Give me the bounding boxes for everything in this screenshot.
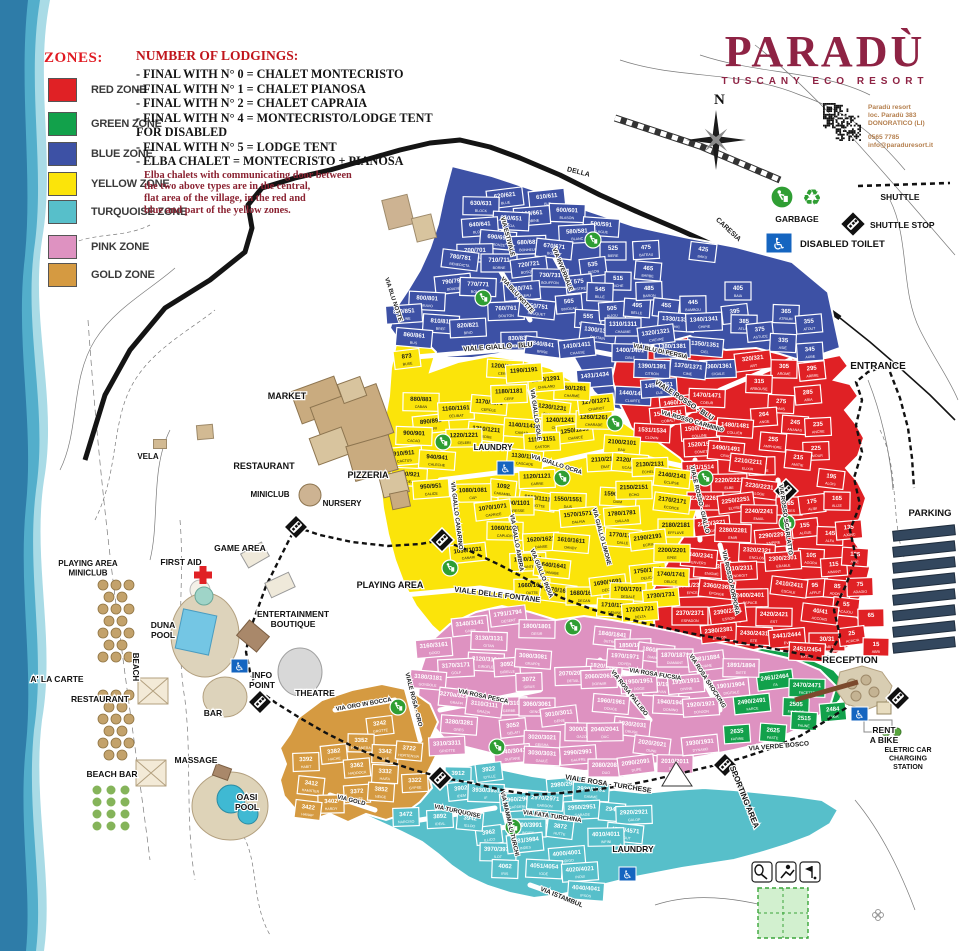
plot-2140/2141: 2140/2141ECLIPSE	[653, 467, 691, 489]
plot-165: 165ALIZE	[824, 492, 850, 510]
plot-2380/2381: 2380/2381ETALON	[700, 622, 738, 644]
svg-text:DELICE: DELICE	[664, 580, 678, 584]
plot-3280/3281: 3280/3281GRES	[440, 715, 477, 735]
svg-text:445: 445	[688, 300, 699, 306]
plot-600/601: 600/601BLASON	[549, 203, 586, 222]
contact-line: 0565 7785	[868, 134, 960, 142]
svg-text:CHIPIE: CHIPIE	[698, 325, 711, 330]
plot-3392: 3392HABIT	[293, 753, 320, 772]
plot-1410/1411: 1410/1411CHASSE	[558, 337, 596, 359]
green-dot	[107, 810, 116, 819]
svg-text:ECHO: ECHO	[629, 493, 640, 497]
svg-text:1120/1121: 1120/1121	[523, 473, 552, 480]
garbage-icon	[585, 232, 601, 248]
flower-icon	[873, 913, 878, 918]
garbage-icon	[554, 470, 570, 486]
plot-1610/1611: 1610/1611DANDY	[552, 532, 589, 553]
plot-495: 495BELLE	[623, 298, 650, 318]
plot-1780/1781: 1780/1781DALLAS	[603, 506, 640, 526]
svg-text:800/801: 800/801	[416, 295, 439, 302]
svg-text:BLANC: BLANC	[571, 237, 584, 242]
legend-swatch	[48, 263, 77, 287]
svg-text:ETE: ETE	[750, 639, 758, 643]
svg-text:3722: 3722	[402, 745, 416, 752]
building	[877, 702, 891, 714]
legend-swatch	[48, 235, 77, 259]
plot-850/851: 850/851BRUNE	[385, 304, 422, 324]
parking-row	[893, 621, 956, 637]
svg-text:BAIA: BAIA	[734, 294, 743, 298]
facility-label: FIRST AID	[160, 557, 201, 567]
green-dot	[107, 786, 116, 795]
svg-text:2505: 2505	[789, 702, 803, 708]
plot-195: 195ALOIS	[817, 468, 845, 489]
plot-3422: 3422HANAP	[294, 799, 322, 820]
svg-text:275: 275	[776, 399, 787, 406]
svg-text:ALIZE: ALIZE	[832, 504, 843, 508]
svg-text:BELLE: BELLE	[631, 311, 643, 316]
svg-text:600/601: 600/601	[556, 208, 579, 215]
plot-295: 295ARBRE	[798, 361, 826, 382]
svg-text:AFFUT: AFFUT	[809, 591, 822, 596]
plot-264: 264ANGE	[750, 407, 777, 427]
facility-label: POOL	[151, 630, 175, 640]
svg-text:515: 515	[613, 276, 624, 282]
svg-text:2515: 2515	[797, 716, 811, 723]
contour-line	[95, 310, 215, 520]
facility-label: VELA	[137, 452, 159, 461]
plot-1920/1921: 1920/1921DONJON	[682, 697, 719, 717]
svg-text:3912: 3912	[451, 771, 465, 777]
svg-text:CLE: CLE	[656, 391, 664, 396]
plot-3852: 3852NEIGE	[367, 782, 394, 802]
svg-text:3060/3061: 3060/3061	[523, 702, 552, 708]
recycle-icon: ♻	[802, 186, 822, 211]
plot-2370/2371: 2370/2371ESPADON	[672, 607, 708, 625]
svg-text:95: 95	[811, 583, 819, 589]
svg-text:ENCLOS: ENCLOS	[749, 556, 765, 561]
facility-label: BOUTIQUE	[271, 619, 316, 629]
svg-text:165: 165	[832, 496, 843, 502]
qr-code	[823, 103, 861, 141]
beach-umbrella	[124, 604, 134, 614]
svg-text:ASIE: ASIE	[779, 346, 788, 350]
garbage-icon	[475, 290, 491, 306]
plot-305: 305AROME	[771, 360, 797, 378]
building	[869, 687, 879, 697]
svg-text:730/731: 730/731	[539, 273, 561, 279]
svg-text:IRIS: IRIS	[501, 872, 509, 876]
beach-umbrella	[111, 652, 121, 662]
svg-text:3392: 3392	[299, 757, 313, 763]
beach-umbrella	[117, 726, 127, 736]
svg-text:1240/1241: 1240/1241	[546, 418, 575, 424]
plot-2390/2391: 2390/2391ESSOR	[709, 603, 747, 625]
svg-text:3020/3021: 3020/3021	[528, 735, 557, 742]
contact-line: DONORATICO (LI)	[868, 120, 960, 128]
facility-label: PIZZERIA	[347, 470, 389, 480]
brand-contact: Paradù resortloc. Paradù 383DONORATICO (…	[868, 104, 960, 150]
svg-text:1220/1221: 1220/1221	[450, 433, 479, 440]
svg-text:DETAIL: DETAIL	[567, 679, 579, 683]
plot-405: 405BAIA	[725, 282, 751, 300]
svg-text:EMAIL: EMAIL	[753, 517, 764, 521]
plot-2635: 2635FARINE	[723, 724, 750, 744]
plot-860/861: 860/861BUS	[395, 327, 432, 348]
legend-item-gold-zone: GOLD ZONE	[48, 263, 155, 287]
svg-text:505: 505	[607, 306, 618, 313]
svg-text:GYPSE: GYPSE	[409, 786, 422, 791]
svg-text:CHARADE: CHARADE	[585, 423, 603, 427]
svg-text:BREF: BREF	[436, 327, 447, 332]
plot-3310/3311: 3310/3311GRIOTTE	[429, 736, 466, 756]
lodging-rule: - FINAL WITH N° 5 = LODGE TENT	[136, 140, 436, 155]
svg-text:DIETE: DIETE	[736, 671, 747, 675]
garbage-label: GARBAGE	[775, 214, 819, 224]
svg-text:BAMBOU: BAMBOU	[685, 308, 701, 312]
beach-umbrella	[104, 592, 114, 602]
svg-text:♿: ♿	[854, 708, 864, 721]
facility-label: PARKING	[908, 508, 951, 519]
svg-text:245: 245	[790, 420, 801, 427]
flower-icon	[879, 913, 884, 918]
garbage-icon	[607, 415, 623, 431]
svg-text:CACAO: CACAO	[407, 439, 420, 443]
green-dot	[121, 786, 130, 795]
green-dot	[107, 822, 116, 831]
flower-icon	[876, 910, 881, 915]
green-dot	[121, 798, 130, 807]
svg-text:♿: ♿	[622, 868, 632, 881]
garbage-icon	[442, 560, 458, 576]
facility-label: PLAYING AREA	[357, 580, 424, 590]
svg-text:2280/2281: 2280/2281	[719, 528, 748, 535]
legend-item-red-zone: RED ZONE	[48, 78, 146, 102]
beach-umbrella	[117, 750, 127, 760]
svg-text:CLAIRTE: CLAIRTE	[625, 399, 641, 404]
svg-text:75: 75	[856, 582, 864, 588]
svg-text:BRIO: BRIO	[464, 331, 473, 335]
plot-255: 255AMPHORE	[759, 432, 786, 452]
svg-text:GIROFLE: GIROFLE	[478, 665, 495, 670]
svg-text:405: 405	[733, 286, 744, 292]
svg-text:HAIFA: HAIFA	[379, 777, 390, 782]
svg-text:1080/1081: 1080/1081	[459, 488, 488, 495]
svg-text:CLOWN: CLOWN	[645, 436, 659, 441]
svg-text:COEUR: COEUR	[700, 401, 714, 405]
svg-text:3372: 3372	[350, 789, 364, 796]
green-dot	[121, 822, 130, 831]
building	[861, 675, 871, 685]
plot-3412: 3412HAMSTER	[297, 776, 325, 797]
svg-text:2920/2921: 2920/2921	[620, 809, 649, 816]
facility-label: INFO	[252, 670, 273, 680]
shuttle-stop-label: SHUTTLE STOP	[870, 220, 935, 230]
svg-text:3852: 3852	[374, 787, 388, 794]
beach-umbrella	[104, 640, 114, 650]
facility-label: BAR	[204, 708, 222, 718]
svg-text:2370/2371: 2370/2371	[676, 611, 705, 617]
flower-icon	[876, 916, 881, 921]
plot-2240/2241: 2240/2241EMAIL	[741, 505, 777, 524]
svg-text:3332: 3332	[378, 769, 392, 776]
svg-text:65: 65	[868, 613, 875, 619]
facility-label: LAUNDRY	[612, 844, 654, 854]
lodgings-rules: - FINAL WITH N° 0 = CHALET MONTECRISTO- …	[136, 67, 436, 169]
plot-425: 425BAKU	[689, 241, 717, 262]
plot-1310/1311: 1310/1311CHAUME	[605, 318, 641, 336]
lodging-note-line: flat area of the village, in the red and	[144, 193, 436, 205]
facility-label: A BIKE	[870, 735, 899, 745]
resort-map-page: 620/621BLUE630/631BLOCK610/611BLE600/601…	[0, 0, 961, 951]
svg-text:2635: 2635	[730, 729, 744, 736]
svg-text:335: 335	[778, 338, 789, 345]
facility-label: DUNA	[151, 620, 176, 630]
plot-2461/2464: 2461/2464FA	[756, 669, 794, 691]
legend-swatch	[48, 78, 77, 102]
disabled-toilet-icon: ♿	[231, 659, 248, 673]
road-label: DELLA	[566, 166, 590, 178]
lodging-note-line: Elba chalets with communicating door bet…	[144, 170, 436, 182]
svg-text:DUO: DUO	[602, 771, 610, 775]
garbage-icon	[697, 470, 713, 486]
svg-text:900/901: 900/901	[403, 431, 426, 438]
svg-text:EPEE: EPEE	[667, 556, 677, 560]
brand-logo: PARADÙ	[700, 30, 950, 74]
plot-2200/2201: 2200/2201EPEE	[654, 544, 690, 563]
svg-text:1740/1741: 1740/1741	[657, 572, 686, 579]
plot-2040/2041: 2040/2041DUC	[587, 723, 623, 742]
green-dot	[93, 798, 102, 807]
svg-text:2200/2201: 2200/2201	[658, 548, 687, 555]
svg-text:3362: 3362	[350, 762, 364, 769]
plot-75: 75ADAGIO	[847, 578, 874, 597]
svg-text:CAPUCIN: CAPUCIN	[497, 534, 514, 538]
facility-label: GAME AREA	[214, 543, 266, 553]
legend-item-pink-zone: PINK ZONE	[48, 235, 149, 259]
svg-text:545: 545	[595, 287, 606, 293]
beach-umbrella	[111, 580, 121, 590]
contour-line	[855, 800, 915, 910]
plot-880/881: 880/881CABAN	[403, 393, 439, 412]
green-dot	[93, 822, 102, 831]
legend-swatch	[48, 172, 77, 196]
svg-text:BORNE: BORNE	[493, 266, 506, 270]
svg-text:295: 295	[806, 365, 817, 372]
plot-2484: 2484FAKIR	[819, 702, 846, 722]
beach-umbrella	[111, 628, 121, 638]
svg-text:IDEAL: IDEAL	[435, 822, 446, 827]
facility-label: THEATRE	[295, 688, 335, 698]
facility-label: RESTAURANT	[233, 461, 295, 471]
svg-text:ALFA: ALFA	[825, 539, 835, 543]
garbage-icon	[435, 434, 451, 450]
plot-3242: 3242GROTTE	[366, 715, 394, 736]
beach-umbrella	[111, 604, 121, 614]
svg-text:3342: 3342	[378, 749, 392, 755]
building	[390, 490, 411, 509]
beach-umbrella	[124, 628, 134, 638]
svg-text:475: 475	[641, 245, 652, 252]
svg-text:DELTA: DELTA	[635, 615, 647, 620]
svg-text:2470/2471: 2470/2471	[793, 683, 822, 690]
facility-label: ELETRIC CAR	[884, 747, 931, 754]
plot-315: 315ARBOUSE	[746, 375, 773, 394]
svg-text:580/581: 580/581	[566, 228, 589, 235]
facility-label: MINICLUB	[250, 490, 289, 499]
plot-1160/1161: 1160/1161CELIBAT	[438, 401, 475, 421]
svg-text:1470/1471: 1470/1471	[693, 393, 722, 400]
svg-text:115: 115	[829, 562, 840, 569]
svg-text:1870/1871: 1870/1871	[661, 653, 690, 659]
beach-umbrella	[98, 580, 108, 590]
svg-text:85: 85	[834, 584, 842, 591]
plot-3472: 3472NARCISO	[393, 808, 420, 827]
garbage-icon	[565, 619, 581, 635]
disabled-toilet-label: DISABLED TOILET	[800, 239, 885, 250]
lodging-note-line: the two above types are in the central,	[144, 181, 436, 193]
svg-text:880/881: 880/881	[410, 397, 432, 403]
plot-1960/1961: 1960/1961DOUCE	[592, 693, 629, 714]
plot-3922: 3922IDYLLE	[475, 761, 503, 782]
svg-text:DAIM: DAIM	[613, 500, 622, 504]
svg-text:EMIR: EMIR	[728, 536, 738, 540]
plot-873: 873BUSE	[393, 348, 421, 369]
svg-text:365: 365	[781, 309, 792, 315]
shuttle-line	[858, 183, 950, 186]
contour-line	[180, 520, 195, 880]
plot-900/901: 900/901CACAO	[396, 426, 433, 445]
svg-text:4062: 4062	[498, 864, 512, 870]
svg-text:GAMME: GAMME	[584, 795, 598, 800]
svg-text:1891/1894: 1891/1894	[727, 663, 756, 670]
svg-text:GERBE: GERBE	[503, 709, 516, 713]
plot-1070/1071: 1070/1071CAPRICE	[474, 499, 512, 521]
contour-line	[150, 430, 170, 560]
svg-text:CHARME: CHARME	[564, 394, 580, 399]
svg-text:264: 264	[759, 412, 770, 419]
beach-umbrella	[111, 714, 121, 724]
plot-3332: 3332HAIFA	[372, 764, 399, 783]
svg-text:2420/2421: 2420/2421	[760, 612, 789, 619]
svg-text:630/631: 630/631	[470, 201, 492, 207]
svg-text:345: 345	[805, 347, 816, 354]
svg-text:AUBE: AUBE	[805, 355, 816, 360]
lodgings-title: NUMBER OF LODGINGS:	[136, 48, 436, 64]
svg-text:215: 215	[793, 455, 804, 462]
plot-3052: 3052GELATI	[499, 718, 527, 739]
svg-text:CELIBAT: CELIBAT	[449, 414, 465, 419]
svg-text:DORMIR: DORMIR	[592, 682, 607, 687]
svg-text:30/31: 30/31	[819, 637, 835, 643]
svg-text:HARDY: HARDY	[325, 807, 338, 811]
svg-text:285: 285	[803, 390, 814, 397]
facility-label: ENTERTAINMENT	[257, 609, 330, 619]
beach-umbrella	[104, 726, 114, 736]
green-dot	[121, 810, 130, 819]
plot-2420/2421: 2420/2421EST	[756, 608, 792, 627]
svg-text:4010/4011: 4010/4011	[592, 832, 621, 838]
golf-icon	[800, 862, 820, 882]
beach-umbrella	[124, 714, 134, 724]
disabled-toilet-icon: ♿	[851, 707, 868, 721]
svg-text:BRAVO: BRAVO	[420, 304, 433, 309]
svg-text:465: 465	[643, 266, 654, 273]
plot-1370/1371: 1370/1371CIME	[669, 358, 707, 380]
plot-950/951: 950/951CALICE	[412, 479, 449, 499]
beach-umbrella	[124, 738, 134, 748]
plot-475: 475BATEAU	[633, 240, 660, 259]
plot-1180/1181: 1180/1181CERF	[491, 384, 528, 403]
svg-text:2040/2041: 2040/2041	[591, 727, 620, 734]
plot-15: 15ABRI	[863, 638, 889, 656]
compass-n-label: N	[714, 92, 725, 108]
green-dot	[93, 786, 102, 795]
disabled-toilet-icon: ♿	[766, 233, 792, 253]
svg-text:ELBE: ELBE	[724, 486, 734, 490]
plot-4051/4054: 4051/4054IODE	[526, 859, 563, 879]
svg-text:495: 495	[632, 303, 643, 310]
svg-text:BIERE: BIERE	[608, 254, 619, 258]
svg-text:455: 455	[661, 303, 672, 310]
beach-umbrella	[124, 580, 134, 590]
svg-text:BUS: BUS	[410, 341, 418, 346]
svg-text:315: 315	[754, 379, 765, 385]
plot-1120/1121: 1120/1121CARRE	[519, 469, 556, 488]
plot-780/781: 780/781BENEDICTA	[441, 249, 479, 271]
svg-text:770/771: 770/771	[467, 282, 490, 289]
svg-text:2625: 2625	[766, 728, 780, 735]
contact-line: info@paraduresort.it	[868, 142, 960, 150]
plot-1390/1391: 1390/1391CITRON	[634, 359, 671, 378]
beach-umbrella	[117, 592, 127, 602]
svg-text:2180/2181: 2180/2181	[662, 523, 691, 529]
svg-text:3130/3131: 3130/3131	[475, 636, 504, 643]
plot-2170/2171: 2170/2171ECORCE	[653, 492, 691, 514]
parking-row	[893, 541, 956, 557]
plot-2150/2151: 2150/2151ECHO	[616, 481, 652, 500]
svg-text:ABRI: ABRI	[872, 650, 880, 654]
svg-text:1700/1701: 1700/1701	[614, 587, 643, 594]
lodgings-block: NUMBER OF LODGINGS: - FINAL WITH N° 0 = …	[136, 48, 436, 217]
facility-label: MINICLUB	[68, 569, 107, 578]
svg-text:GITAN: GITAN	[483, 644, 494, 648]
facility-label: A' LA CARTE	[30, 674, 84, 684]
svg-text:AROME: AROME	[777, 372, 791, 376]
svg-text:CARRE: CARRE	[531, 482, 544, 486]
lodging-rule: - ELBA CHALET = MONTECRISTO + PIANOSA	[136, 154, 436, 169]
plot-1190/1191: 1190/1191	[505, 363, 542, 383]
plot-65: 65	[858, 609, 884, 627]
svg-text:235: 235	[813, 422, 824, 429]
svg-text:FAUNE: FAUNE	[798, 724, 811, 729]
facility-label: STATION	[893, 764, 923, 771]
svg-text:INFINI: INFINI	[601, 840, 611, 844]
svg-text:575: 575	[573, 278, 584, 285]
svg-text:DALLE: DALLE	[617, 541, 629, 546]
plot-1092: 1092CARAMEL	[489, 479, 517, 500]
svg-text:525: 525	[608, 246, 619, 252]
plot-2920/2921: 2920/2921GALOP	[616, 805, 653, 824]
plot-3080/3081: 3080/3081GRAPPE	[514, 649, 551, 669]
building	[299, 484, 321, 506]
beach-umbrella	[98, 604, 108, 614]
plot-215: 215AMITIE	[784, 450, 812, 471]
svg-text:CASTOR: CASTOR	[535, 445, 551, 450]
legend-label: GOLD ZONE	[91, 269, 155, 281]
facility-label: PLAYING AREA	[58, 559, 118, 568]
svg-text:CITRON: CITRON	[645, 372, 659, 376]
